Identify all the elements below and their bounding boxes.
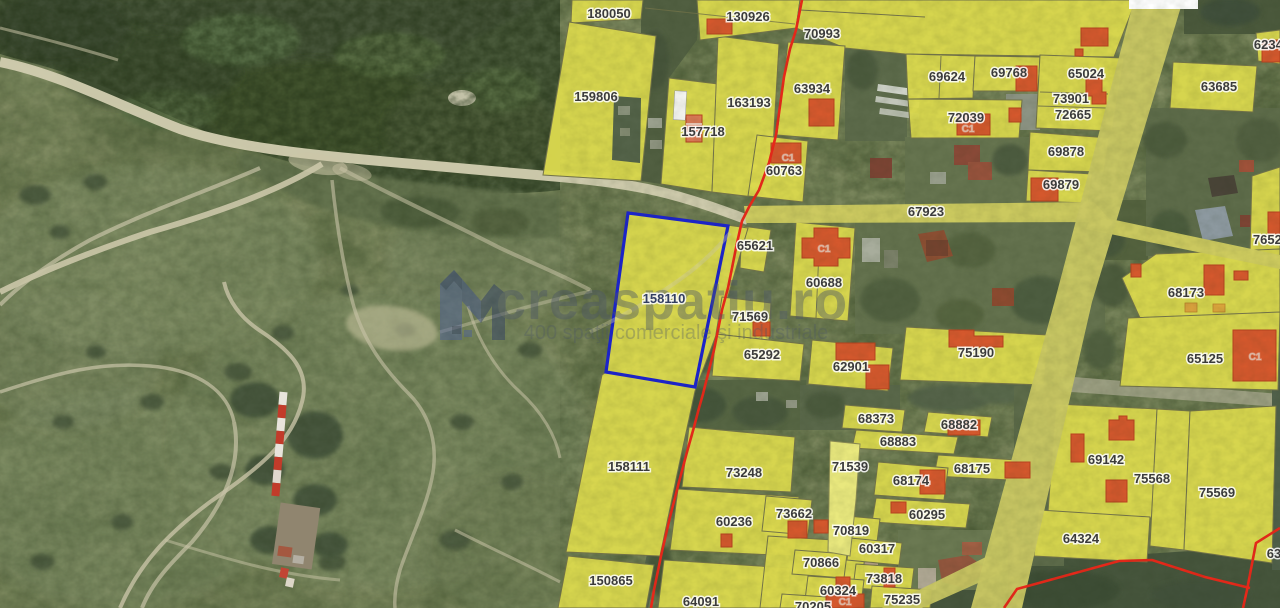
svg-text:64324: 64324 <box>1063 531 1100 546</box>
svg-text:70993: 70993 <box>804 26 840 41</box>
svg-text:68373: 68373 <box>858 411 894 426</box>
svg-text:76527: 76527 <box>1253 232 1280 247</box>
svg-text:68173: 68173 <box>1168 285 1204 300</box>
svg-text:400 spaţii comerciale şi indus: 400 spaţii comerciale şi industriale <box>524 322 829 344</box>
svg-text:69624: 69624 <box>929 69 966 84</box>
svg-text:62341: 62341 <box>1254 37 1280 52</box>
svg-text:72665: 72665 <box>1055 107 1091 122</box>
svg-text:130926: 130926 <box>726 9 769 24</box>
svg-text:159806: 159806 <box>574 89 617 104</box>
svg-text:67923: 67923 <box>908 204 944 219</box>
svg-text:C1: C1 <box>962 124 975 135</box>
svg-text:60324: 60324 <box>820 583 857 598</box>
svg-text:75235: 75235 <box>884 592 920 607</box>
svg-text:69879: 69879 <box>1043 177 1079 192</box>
svg-text:60763: 60763 <box>766 163 802 178</box>
svg-text:75190: 75190 <box>958 345 994 360</box>
svg-text:68174: 68174 <box>893 473 930 488</box>
svg-text:63685: 63685 <box>1201 79 1237 94</box>
svg-text:158111: 158111 <box>608 459 650 474</box>
svg-text:71569: 71569 <box>732 309 768 324</box>
svg-text:69142: 69142 <box>1088 452 1124 467</box>
svg-text:69878: 69878 <box>1048 144 1084 159</box>
svg-text:C1: C1 <box>839 597 852 608</box>
svg-text:73662: 73662 <box>776 506 812 521</box>
svg-text:70819: 70819 <box>833 523 869 538</box>
svg-text:180050: 180050 <box>587 6 630 21</box>
svg-text:60317: 60317 <box>859 541 895 556</box>
svg-text:73901: 73901 <box>1053 91 1089 106</box>
svg-text:68175: 68175 <box>954 461 990 476</box>
svg-text:C1: C1 <box>818 244 831 255</box>
svg-text:60295: 60295 <box>909 507 945 522</box>
svg-text:71539: 71539 <box>832 459 868 474</box>
svg-text:65621: 65621 <box>737 238 773 253</box>
svg-text:72039: 72039 <box>948 110 984 125</box>
svg-text:64091: 64091 <box>683 594 719 608</box>
svg-text:60688: 60688 <box>806 275 842 290</box>
svg-text:C1: C1 <box>1249 352 1262 363</box>
svg-text:65292: 65292 <box>744 347 780 362</box>
svg-text:63: 63 <box>1267 546 1280 561</box>
svg-text:158110: 158110 <box>643 291 686 306</box>
svg-text:63934: 63934 <box>794 81 831 96</box>
svg-text:68883: 68883 <box>880 434 916 449</box>
svg-text:163193: 163193 <box>727 95 770 110</box>
svg-text:73248: 73248 <box>726 465 762 480</box>
svg-text:62901: 62901 <box>833 359 869 374</box>
svg-text:70205: 70205 <box>795 599 831 608</box>
svg-text:60236: 60236 <box>716 514 752 529</box>
svg-text:75568: 75568 <box>1134 471 1170 486</box>
svg-text:C1: C1 <box>782 153 795 164</box>
svg-text:150865: 150865 <box>589 573 632 588</box>
svg-text:75569: 75569 <box>1199 485 1235 500</box>
svg-text:73818: 73818 <box>866 571 902 586</box>
svg-text:68882: 68882 <box>941 417 977 432</box>
svg-text:70866: 70866 <box>803 555 839 570</box>
svg-text:157718: 157718 <box>681 124 724 139</box>
svg-text:65125: 65125 <box>1187 351 1223 366</box>
svg-text:69768: 69768 <box>991 65 1027 80</box>
svg-text:65024: 65024 <box>1068 66 1105 81</box>
